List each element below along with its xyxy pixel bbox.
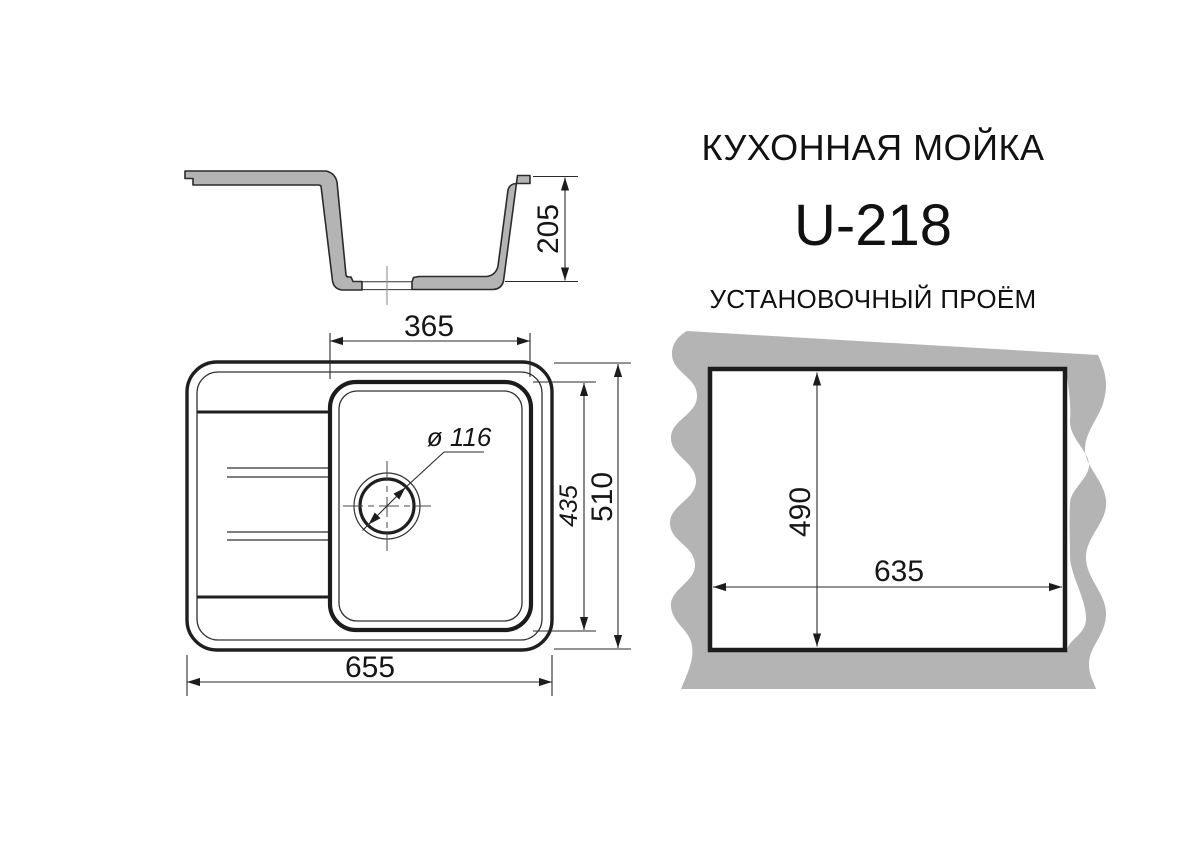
technical-drawing-page: КУХОННАЯ МОЙКА U-218 УСТАНОВОЧНЫЙ ПРОЁМ … xyxy=(0,0,1200,846)
dim-label-bowl-width: 365 xyxy=(404,310,454,343)
cutout-view: 490 635 xyxy=(670,331,1106,689)
dim-label-drain-diameter: ø 116 xyxy=(427,422,492,452)
dim-label-cutout-length: 490 xyxy=(784,487,817,537)
cutout-rectangle xyxy=(710,369,1065,650)
dim-label-sink-length: 510 xyxy=(586,472,619,522)
dim-label-cutout-width: 635 xyxy=(874,555,924,588)
top-view: ø 116 365 435 510 655 xyxy=(187,310,631,696)
dim-label-section-height: 205 xyxy=(532,204,565,254)
drawing-svg: 205 ø 116 xyxy=(0,0,1200,846)
dim-label-bowl-length: 435 xyxy=(555,485,583,527)
section-right-profile xyxy=(412,176,530,290)
section-left-profile xyxy=(185,171,362,290)
cross-section-view: 205 xyxy=(185,171,578,305)
dim-label-sink-width: 655 xyxy=(345,651,395,684)
